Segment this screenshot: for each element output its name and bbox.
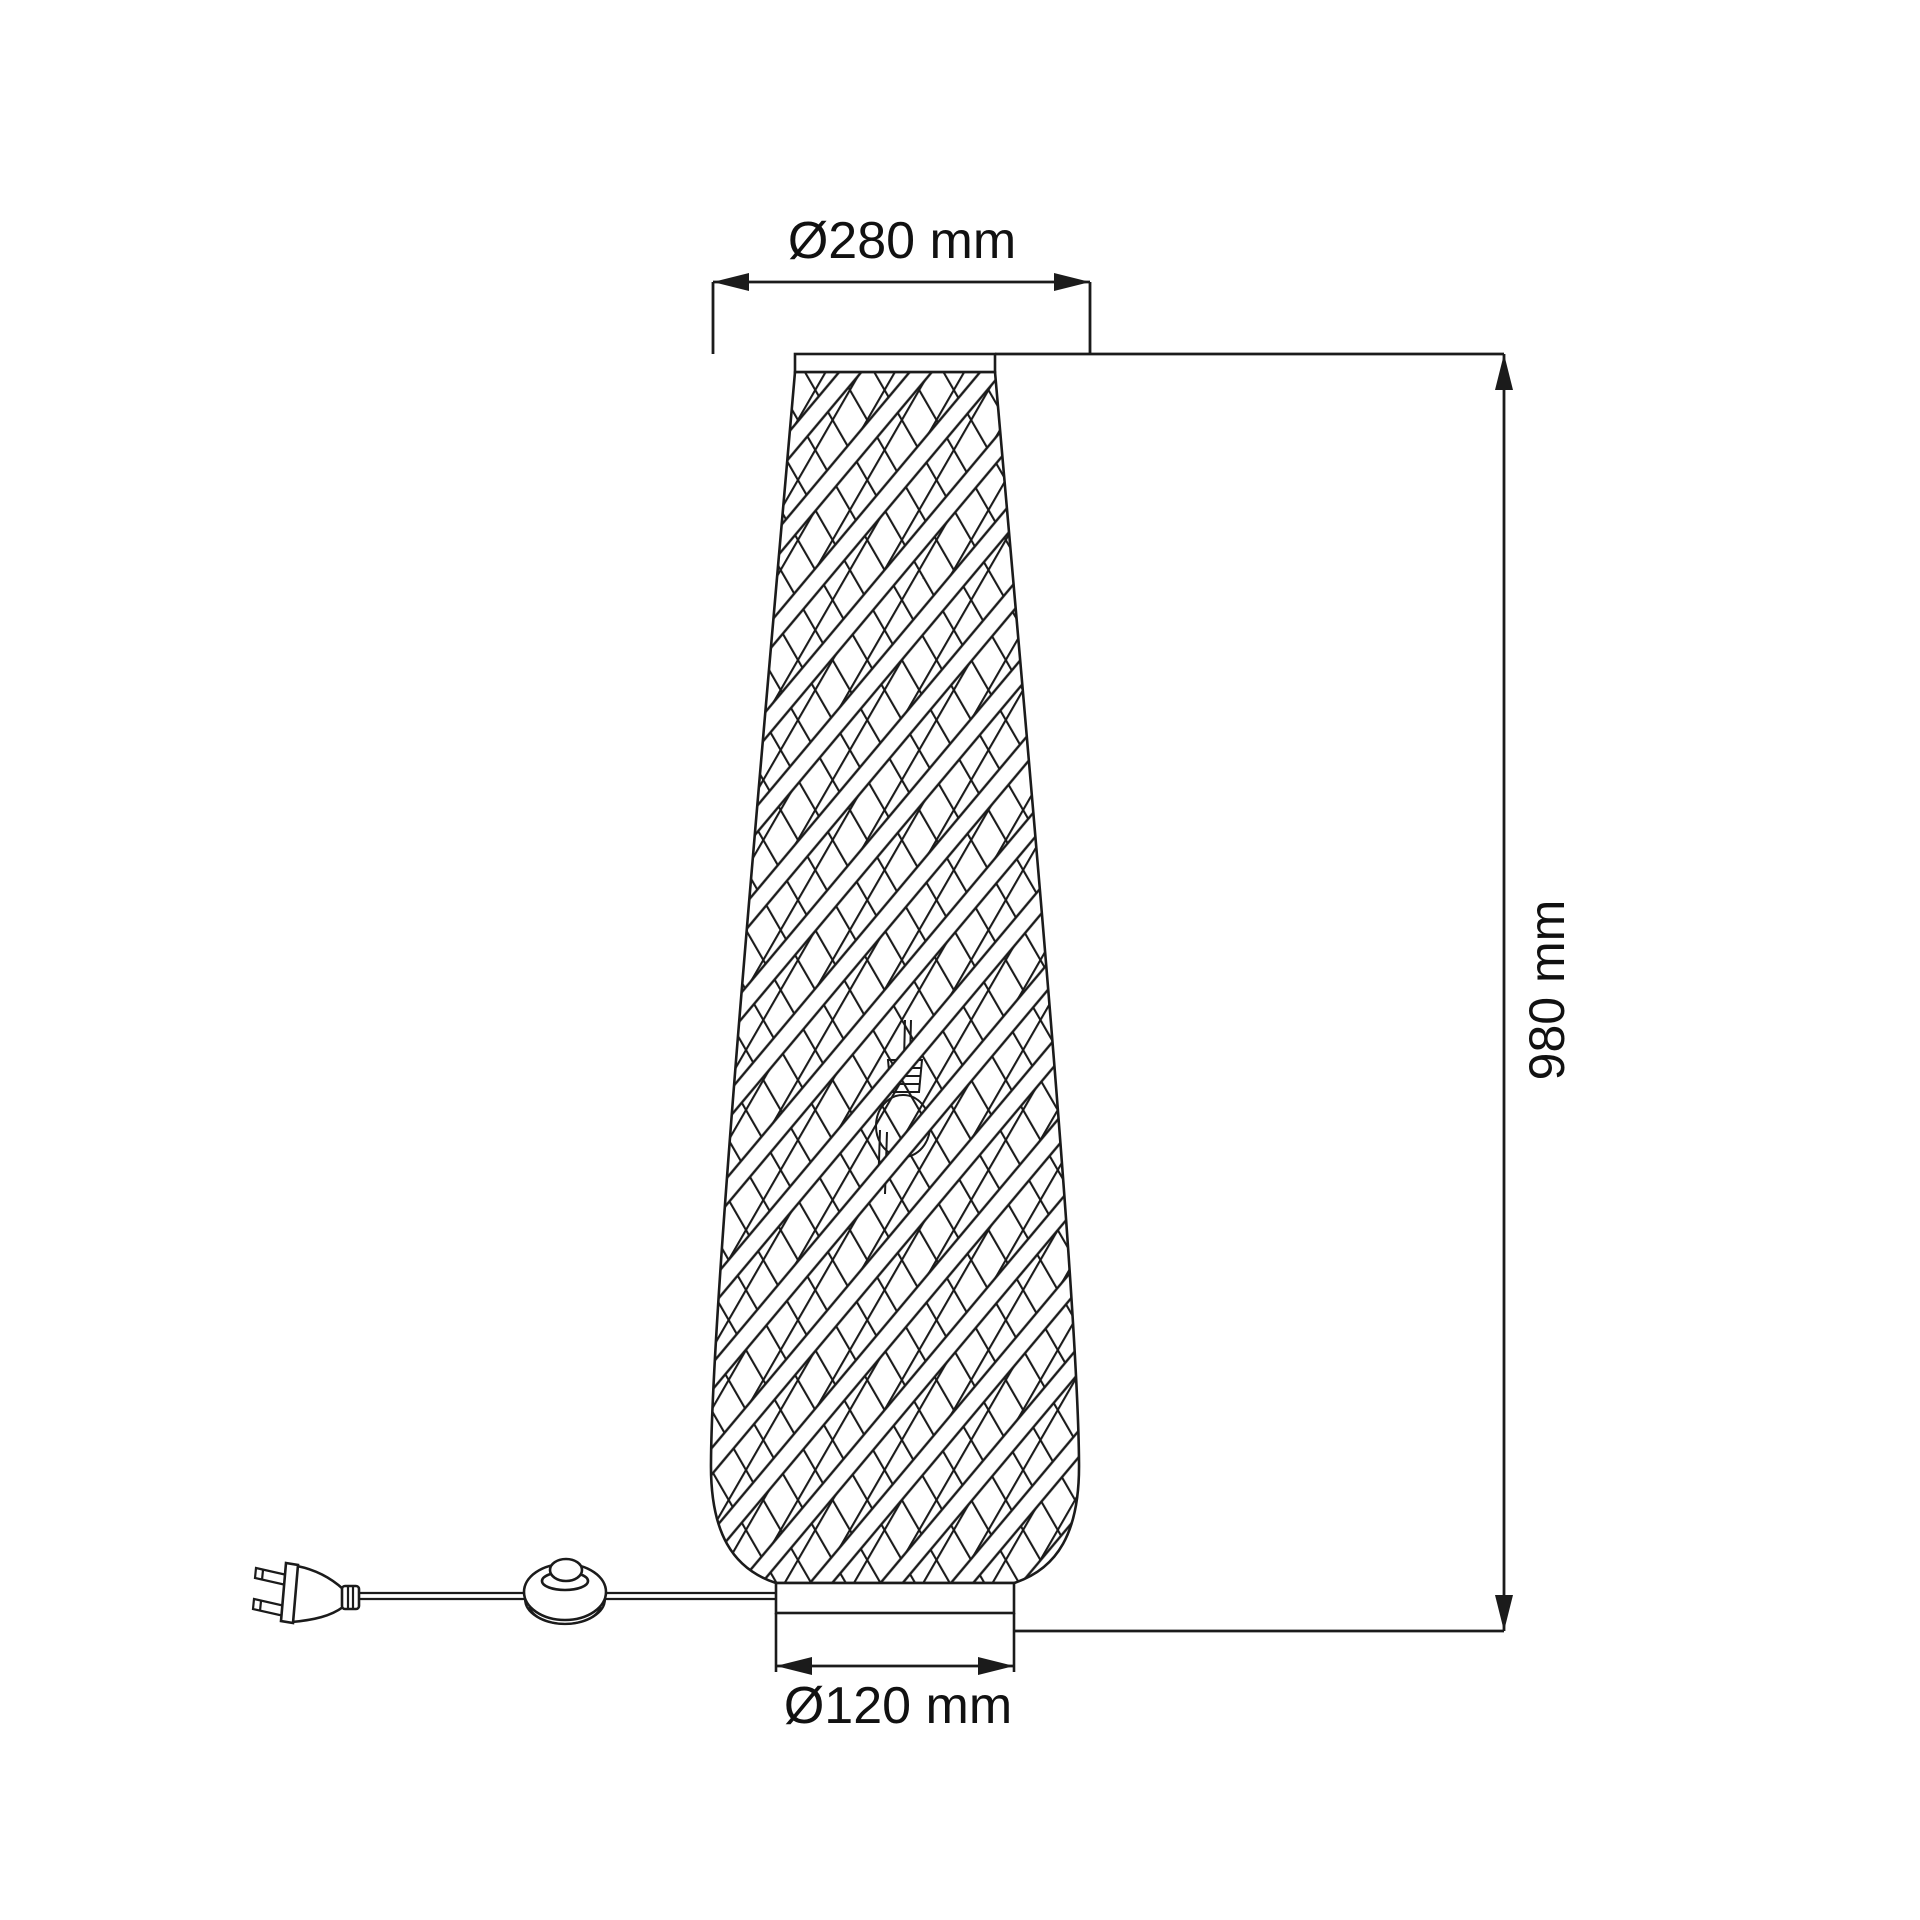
lattice-pattern bbox=[695, 360, 1095, 1595]
arrowhead-down-icon bbox=[1495, 1595, 1513, 1631]
power-plug bbox=[253, 1563, 359, 1623]
plug-body bbox=[292, 1566, 343, 1622]
height-label: 980 mm bbox=[1519, 900, 1575, 1081]
arrowhead-right-icon bbox=[978, 1657, 1014, 1675]
arrowhead-right-icon bbox=[1054, 273, 1090, 291]
arrowhead-left-icon bbox=[776, 1657, 812, 1675]
lamp-drawing: Ø280 mm 980 mm bbox=[0, 0, 1920, 1920]
base-cylinder bbox=[776, 1583, 1014, 1613]
shade-top-rim bbox=[795, 354, 995, 372]
arrowhead-up-icon bbox=[1495, 354, 1513, 390]
dimension-top-diameter: Ø280 mm bbox=[713, 212, 1090, 354]
switch-button bbox=[550, 1559, 582, 1581]
lamp-shade bbox=[695, 354, 1095, 1595]
technical-drawing-canvas: Ø280 mm 980 mm bbox=[0, 0, 1920, 1920]
foot-switch bbox=[524, 1559, 606, 1624]
top-diameter-label: Ø280 mm bbox=[788, 212, 1016, 270]
dimension-base-diameter: Ø120 mm bbox=[776, 1657, 1014, 1735]
arrowhead-left-icon bbox=[713, 273, 749, 291]
dimension-height: 980 mm bbox=[995, 354, 1575, 1631]
base-diameter-label: Ø120 mm bbox=[784, 1677, 1012, 1735]
plug-collar bbox=[342, 1586, 359, 1609]
